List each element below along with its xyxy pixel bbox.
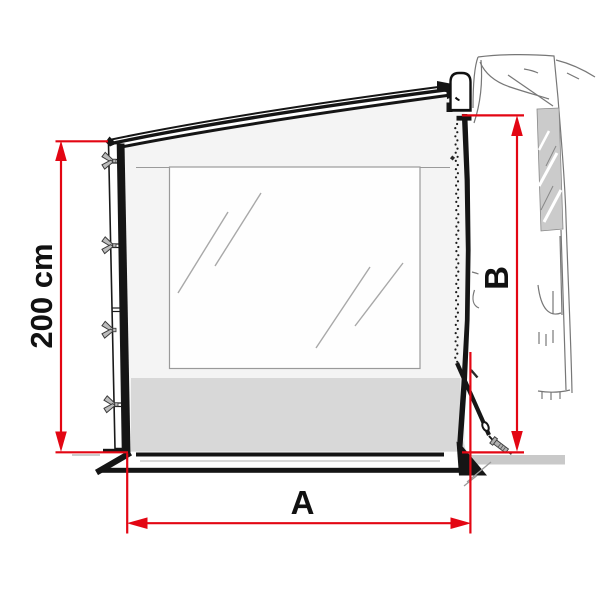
svg-text:A: A (291, 484, 315, 521)
svg-text:B: B (478, 266, 515, 290)
svg-text:200 cm: 200 cm (24, 243, 59, 348)
